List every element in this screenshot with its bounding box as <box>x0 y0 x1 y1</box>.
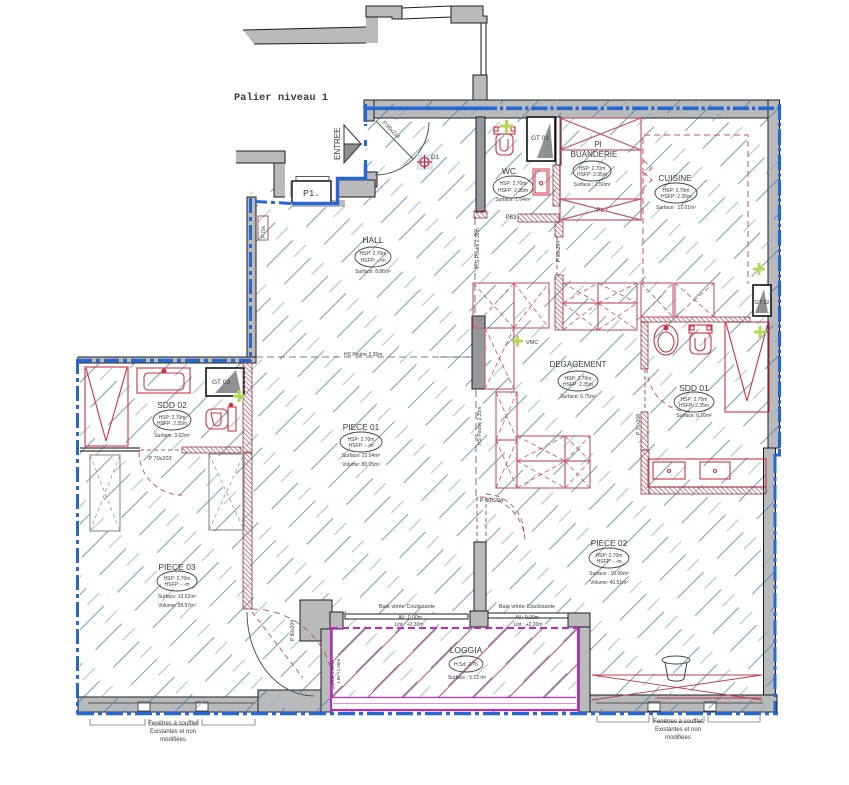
svg-text:HSP: 2.70m: HSP: 2.70m <box>360 251 387 257</box>
svg-text:GT 01: GT 01 <box>531 135 549 142</box>
svg-text:D1: D1 <box>431 154 440 161</box>
svg-text:P63: P63 <box>506 215 517 221</box>
svg-text:BUANDERIE: BUANDERIE <box>571 150 618 159</box>
svg-text:HSP: 2.70m: HSP: 2.70m <box>500 181 527 187</box>
svg-text:ENTREE: ENTREE <box>333 128 342 160</box>
svg-text:SDD 01: SDD 01 <box>679 383 709 393</box>
svg-text:HSFP: -.-m: HSFP: -.-m <box>349 443 374 449</box>
svg-text:H.Sd: 2.76: H.Sd: 2.76 <box>454 662 478 668</box>
svg-text:1.80 +1.40m: 1.80 +1.40m <box>336 659 341 684</box>
svg-text:CUISINE: CUISINE <box>658 174 692 183</box>
svg-text:PIECE 03: PIECE 03 <box>158 562 196 572</box>
svg-text:HS Poutre 2.35m: HS Poutre 2.35m <box>477 407 483 445</box>
svg-text:modifiées: modifiées <box>665 735 691 741</box>
svg-text:HSFP: 2.35m: HSFP: 2.35m <box>498 188 528 194</box>
svg-text:HSFP: 2.35m: HSFP: 2.35m <box>577 172 607 178</box>
svg-text:Palier niveau 1: Palier niveau 1 <box>234 92 328 104</box>
svg-text:Surface: 22.54m²: Surface: 22.54m² <box>342 453 381 459</box>
svg-text:HSFP: -.-m: HSFP: -.-m <box>165 582 190 588</box>
svg-text:P.70x: P.70x <box>261 225 267 238</box>
svg-text:Baie vitrée Coulissante: Baie vitrée Coulissante <box>499 604 555 610</box>
svg-text:GT 03: GT 03 <box>212 379 230 386</box>
svg-text:Pl: Pl <box>594 140 601 149</box>
svg-text:Lint : +2.30m: Lint : +2.30m <box>394 622 423 628</box>
svg-text:HSFP: 2.35m: HSFP: 2.35m <box>157 421 187 427</box>
svg-text:Surface : 5.13 m²: Surface : 5.13 m² <box>448 675 487 681</box>
svg-text:GT 02: GT 02 <box>754 300 769 306</box>
svg-text:Surface: 13.62m²: Surface: 13.62m² <box>158 594 197 600</box>
svg-text:HALL: HALL <box>362 235 384 245</box>
svg-text:HSFP: 2.35m: HSFP: 2.35m <box>679 403 709 409</box>
svg-text:Surface: 3.62m²: Surface: 3.62m² <box>154 433 190 439</box>
svg-text:Surface : 12.01m²: Surface : 12.01m² <box>656 205 696 211</box>
svg-text:Baie vitrée Coulissante: Baie vitrée Coulissante <box>379 604 435 610</box>
svg-text:P1.: P1. <box>303 188 320 199</box>
svg-text:HSFP: -.-m: HSFP: -.-m <box>361 258 386 264</box>
svg-text:Surface : 15.00m²: Surface : 15.00m² <box>589 571 629 577</box>
svg-text:HS Poutre 2.35m: HS Poutre 2.35m <box>344 352 382 358</box>
svg-text:modifiées: modifiées <box>160 737 186 743</box>
svg-text:P 90x204: P 90x204 <box>556 241 562 262</box>
svg-text:Volume: 80.05m³: Volume: 80.05m³ <box>342 462 380 468</box>
svg-text:LOGGIA: LOGGIA <box>450 645 483 655</box>
svg-text:WC: WC <box>502 166 516 176</box>
svg-text:HSFP: 2.35m: HSFP: 2.35m <box>661 194 691 200</box>
svg-text:PIECE 02: PIECE 02 <box>591 538 628 548</box>
svg-text:Surface: 6.75m²: Surface: 6.75m² <box>560 394 596 400</box>
svg-text:All : 0.00m: All : 0.00m <box>515 615 539 621</box>
svg-text:SDD 02: SDD 02 <box>157 400 187 410</box>
svg-text:Volume: 40.51m³: Volume: 40.51m³ <box>590 580 628 586</box>
svg-text:Existantes et non: Existantes et non <box>150 729 196 735</box>
svg-text:P 70x208: P 70x208 <box>636 414 642 435</box>
svg-text:Surface : 2.50m²: Surface : 2.50m² <box>574 182 611 188</box>
svg-text:Surface: 8.86m²: Surface: 8.86m² <box>355 269 391 275</box>
svg-text:Surface: 1.64m²: Surface: 1.64m² <box>495 197 531 203</box>
svg-text:PIECE 01: PIECE 01 <box>343 422 380 432</box>
svg-text:Existantes et non: Existantes et non <box>655 727 701 733</box>
svg-text:HSFP: 2.35m: HSFP: 2.35m <box>563 382 593 388</box>
svg-text:H.S Poutre 2.35m: H.S Poutre 2.35m <box>475 228 481 268</box>
svg-text:Volume: 38.97m³: Volume: 38.97m³ <box>158 603 196 609</box>
svg-text:P 80x204: P 80x204 <box>290 620 296 641</box>
svg-text:AB : 0.86m: AB : 0.86m <box>330 661 335 684</box>
svg-text:HSFP: -.-m: HSFP: -.-m <box>597 559 622 565</box>
svg-text:P 80x204: P 80x204 <box>480 498 503 504</box>
svg-text:VMC: VMC <box>526 340 538 346</box>
svg-text:Lint : +2.30m: Lint : +2.30m <box>513 622 542 628</box>
svg-text:Fenêtres à soufflet: Fenêtres à soufflet <box>148 721 198 727</box>
svg-text:PL: PL <box>596 208 604 214</box>
svg-text:All : 0.00m: All : 0.00m <box>398 615 422 621</box>
svg-text:DEGAGEMENT: DEGAGEMENT <box>550 360 607 369</box>
svg-text:Surface: 6.16m²: Surface: 6.16m² <box>676 413 712 419</box>
svg-text:P 70x203: P 70x203 <box>148 456 171 462</box>
svg-text:Fenêtres à soufflet: Fenêtres à soufflet <box>653 719 703 725</box>
